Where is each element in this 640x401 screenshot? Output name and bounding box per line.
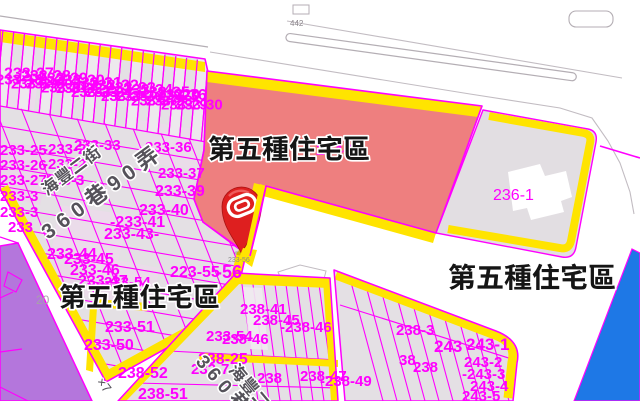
svg-text:238-52: 238-52 xyxy=(118,365,168,382)
svg-text:442: 442 xyxy=(290,19,304,28)
svg-text:233-39: 233-39 xyxy=(155,183,205,200)
svg-text:233-50: 233-50 xyxy=(84,337,134,354)
svg-text:233-43-: 233-43- xyxy=(104,226,159,243)
svg-text:-56: -56 xyxy=(216,262,242,282)
svg-text:233: 233 xyxy=(8,219,33,236)
svg-text:233-37: 233-37 xyxy=(158,165,205,182)
svg-text:233-56: 233-56 xyxy=(228,257,250,264)
svg-text:238-3: 238-3 xyxy=(396,322,434,339)
svg-text:223-55: 223-55 xyxy=(170,264,220,281)
svg-text:-920: -920 xyxy=(168,87,200,104)
svg-text:243-5: 243-5 xyxy=(462,388,500,401)
svg-text:20: 20 xyxy=(36,293,50,307)
svg-text:243: 243 xyxy=(434,337,462,356)
svg-text:238: 238 xyxy=(257,370,282,387)
svg-text:-238-46: -238-46 xyxy=(280,319,332,336)
svg-text:238-51: 238-51 xyxy=(138,386,188,401)
svg-text:238-46: 238-46 xyxy=(222,331,269,348)
svg-text:238: 238 xyxy=(413,359,438,376)
svg-text:-238-49: -238-49 xyxy=(320,373,372,390)
svg-text:233-27: 233-27 xyxy=(0,172,47,189)
svg-text:243-1: 243-1 xyxy=(466,335,509,354)
svg-text:233-3: 233-3 xyxy=(0,188,38,205)
svg-text:233-51: 233-51 xyxy=(105,319,155,336)
svg-text:236-1: 236-1 xyxy=(493,187,534,204)
